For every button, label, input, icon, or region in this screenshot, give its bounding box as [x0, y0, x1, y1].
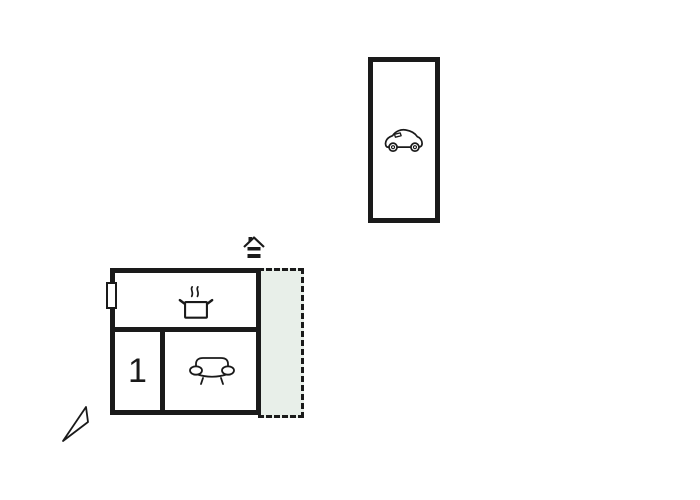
window: [106, 282, 117, 309]
north-arrow-icon: [60, 404, 90, 444]
sofa-icon: [189, 353, 235, 387]
garage-room: [368, 57, 440, 223]
room-number-label: 1: [128, 354, 147, 388]
entrance-house-icon: [243, 235, 265, 261]
car-icon: [384, 127, 424, 154]
floorplan-canvas: 1: [0, 0, 700, 500]
cooking-pot-icon: [176, 284, 216, 322]
room-living: [165, 332, 256, 410]
house-outline: 1: [110, 268, 261, 415]
room-1: 1: [115, 332, 160, 410]
room-kitchen: [115, 273, 256, 327]
terrace-area: [258, 268, 304, 418]
